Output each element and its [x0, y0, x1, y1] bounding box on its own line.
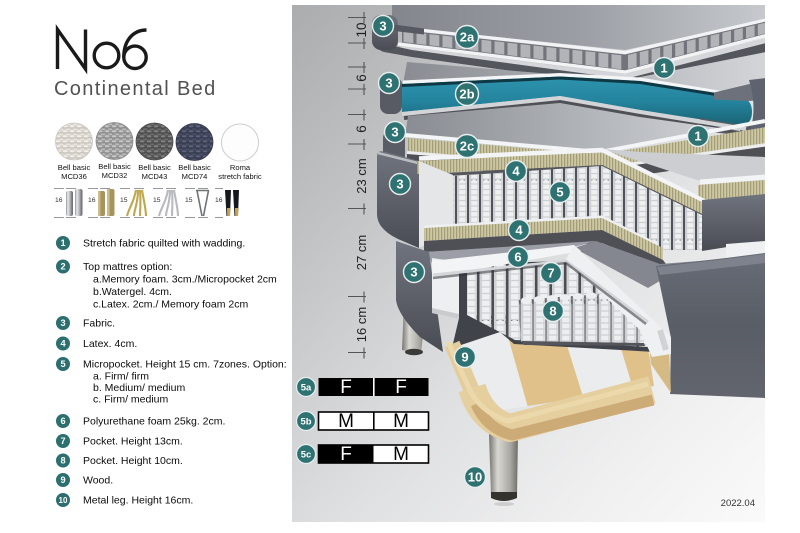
svg-text:6: 6 [60, 416, 65, 426]
svg-text:9: 9 [461, 350, 468, 365]
svg-text:5: 5 [556, 185, 563, 200]
svg-text:Polyurethane foam 25kg. 2cm.: Polyurethane foam 25kg. 2cm. [83, 415, 225, 427]
svg-text:1: 1 [60, 238, 65, 248]
svg-text:16: 16 [215, 197, 223, 204]
svg-text:M: M [393, 411, 409, 432]
svg-text:c. Firm/ medium: c. Firm/ medium [93, 393, 169, 405]
svg-text:Metal leg. Height 16cm.: Metal leg. Height 16cm. [83, 494, 193, 506]
svg-text:stretch fabric: stretch fabric [218, 172, 262, 181]
svg-text:F: F [340, 377, 352, 398]
svg-text:Stretch fabric quilted with wa: Stretch fabric quilted with wadding. [83, 237, 245, 249]
svg-text:7: 7 [60, 436, 65, 446]
svg-text:F: F [395, 377, 407, 398]
svg-text:Wood.: Wood. [83, 474, 113, 486]
svg-text:Pocket. Height 10cm.: Pocket. Height 10cm. [83, 455, 183, 467]
svg-text:Micropocket. Height 15 cm. 7zo: Micropocket. Height 15 cm. 7zones. Optio… [83, 358, 287, 370]
svg-text:6: 6 [354, 74, 369, 82]
svg-text:5c: 5c [301, 450, 312, 461]
svg-text:c.Latex. 2cm./ Memory foam 2cm: c.Latex. 2cm./ Memory foam 2cm [93, 298, 248, 310]
svg-text:MCD43: MCD43 [142, 172, 168, 181]
svg-text:MCD74: MCD74 [182, 172, 208, 181]
svg-text:8: 8 [549, 304, 556, 319]
svg-text:F: F [340, 444, 352, 465]
svg-text:6: 6 [354, 125, 369, 133]
svg-text:M: M [393, 444, 409, 465]
svg-text:Continental Bed: Continental Bed [54, 78, 217, 100]
svg-text:27 cm: 27 cm [354, 235, 369, 270]
svg-text:16 cm: 16 cm [354, 307, 369, 342]
svg-text:4: 4 [515, 223, 523, 238]
svg-text:Fabric.: Fabric. [83, 317, 115, 329]
svg-text:MCD32: MCD32 [102, 171, 128, 180]
svg-text:Roma: Roma [230, 163, 251, 172]
svg-text:4: 4 [60, 339, 66, 349]
svg-text:6: 6 [514, 250, 521, 265]
svg-text:2b: 2b [459, 87, 474, 102]
svg-text:Latex. 4cm.: Latex. 4cm. [83, 338, 137, 350]
svg-text:8: 8 [60, 456, 65, 466]
svg-text:a.Memory foam. 3cm./Micropocke: a.Memory foam. 3cm./Micropocket 2cm [93, 273, 277, 285]
svg-text:1: 1 [694, 129, 701, 144]
svg-text:3: 3 [379, 19, 386, 34]
svg-text:5: 5 [60, 359, 65, 369]
svg-text:b.Watergel. 4cm.: b.Watergel. 4cm. [93, 286, 172, 298]
svg-text:3: 3 [396, 177, 403, 192]
svg-text:7: 7 [547, 266, 554, 281]
svg-text:15: 15 [153, 197, 161, 204]
svg-text:3: 3 [410, 265, 417, 280]
svg-text:5b: 5b [300, 417, 311, 428]
svg-text:3: 3 [60, 318, 65, 328]
svg-text:Bell basic: Bell basic [178, 163, 211, 172]
svg-text:10: 10 [468, 470, 482, 485]
svg-text:2a: 2a [460, 30, 475, 45]
svg-text:15: 15 [120, 197, 128, 204]
svg-text:3: 3 [385, 76, 392, 91]
svg-text:Bell basic: Bell basic [138, 163, 171, 172]
svg-text:1: 1 [660, 61, 667, 76]
svg-text:2c: 2c [460, 139, 474, 154]
svg-text:10: 10 [59, 496, 68, 505]
svg-text:3: 3 [391, 125, 398, 140]
svg-text:MCD36: MCD36 [61, 172, 87, 181]
svg-text:Pocket. Height 13cm.: Pocket. Height 13cm. [83, 435, 183, 447]
svg-text:Bell basic: Bell basic [98, 162, 131, 171]
svg-text:15: 15 [185, 197, 193, 204]
svg-text:M: M [338, 411, 354, 432]
svg-text:9: 9 [60, 475, 65, 485]
svg-text:4: 4 [512, 164, 520, 179]
svg-text:2: 2 [60, 262, 65, 272]
svg-text:a. Firm/ firm: a. Firm/ firm [93, 370, 149, 382]
svg-text:5a: 5a [301, 383, 312, 394]
svg-text:Top mattres option:: Top mattres option: [83, 261, 172, 273]
svg-text:Bell basic: Bell basic [58, 163, 91, 172]
svg-text:16: 16 [55, 197, 63, 204]
svg-text:23 cm: 23 cm [354, 158, 369, 193]
svg-text:2022.04: 2022.04 [721, 498, 755, 509]
svg-text:16: 16 [88, 197, 96, 204]
svg-text:10: 10 [354, 22, 369, 37]
svg-text:b. Medium/ medium: b. Medium/ medium [93, 382, 185, 394]
